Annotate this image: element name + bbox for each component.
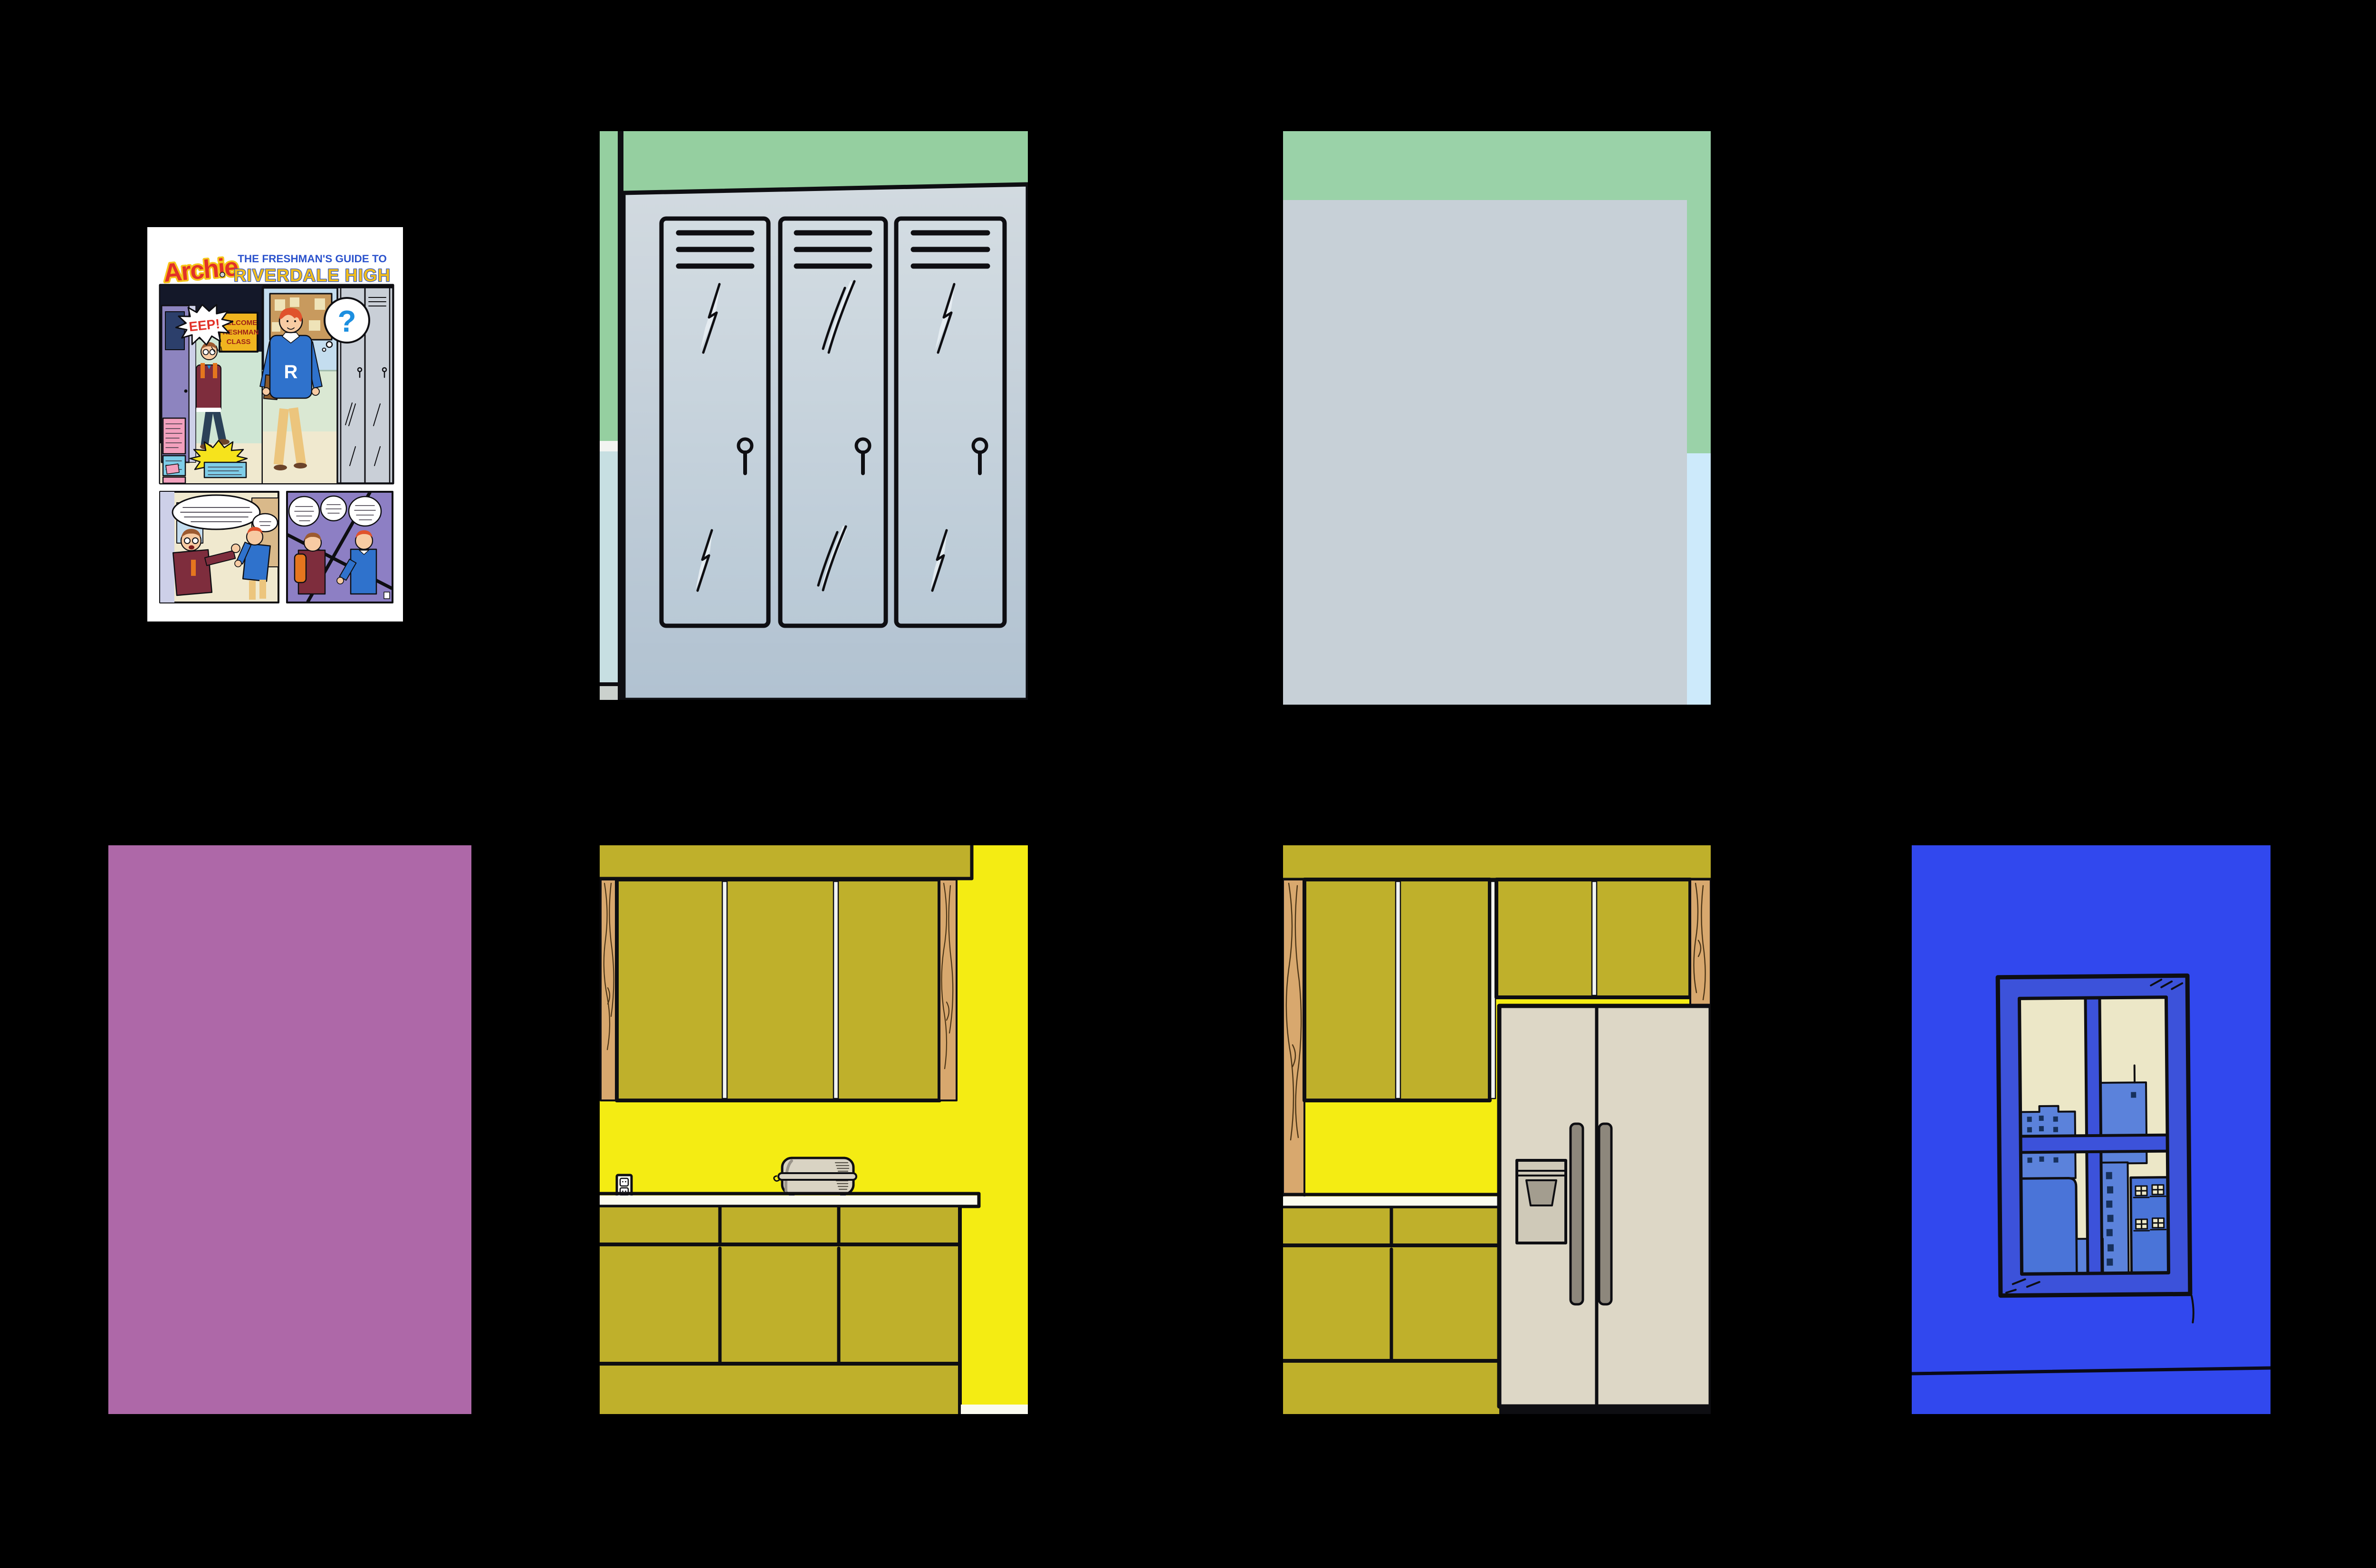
caption-boxes xyxy=(163,418,185,483)
refrigerator xyxy=(1499,1006,1711,1414)
window-mullion xyxy=(2021,1135,2167,1153)
locker-door xyxy=(661,219,768,626)
comic-inset-scene: R ? xyxy=(260,287,393,483)
soffit xyxy=(1283,845,1711,880)
logo-star-icon xyxy=(220,272,225,277)
locker-door xyxy=(896,219,1005,626)
fridge-handle xyxy=(1599,1124,1611,1304)
kitchen-fridge-panel[interactable] xyxy=(1283,845,1711,1414)
city-window-panel[interactable] xyxy=(1912,845,2271,1414)
locker-illustration-panel[interactable] xyxy=(600,131,1028,700)
window xyxy=(1998,975,2194,1324)
locker-door xyxy=(780,219,886,626)
upper-cabinets xyxy=(1496,880,1690,997)
wood-trim xyxy=(1283,880,1304,1206)
lower-cabinets xyxy=(600,1207,960,1414)
comic-bottom-left-panel xyxy=(160,492,278,602)
wood-trim xyxy=(1690,880,1711,1006)
fridge-dispenser xyxy=(1517,1160,1566,1243)
comic-bottom-right-panel xyxy=(287,492,393,602)
upper-cabinets xyxy=(1304,880,1490,1100)
soffit xyxy=(600,845,972,879)
baseboard xyxy=(961,1405,1028,1414)
svg-text:CLASS: CLASS xyxy=(227,338,251,346)
comic-title-top: THE FRESHMAN'S GUIDE TO xyxy=(238,253,387,265)
dropped-paper xyxy=(166,464,179,474)
bread-box xyxy=(774,1158,856,1195)
purple-blank-panel[interactable] xyxy=(108,845,471,1414)
sweater-letter: R xyxy=(284,362,298,382)
city-building xyxy=(2131,1177,2169,1273)
caption-box xyxy=(204,462,246,478)
comic-main-art: WELCOME FRESHMAN CLASS EEP! xyxy=(160,285,393,483)
countertop xyxy=(600,1194,979,1206)
countertop xyxy=(1283,1195,1499,1207)
svg-text:?: ? xyxy=(337,304,356,338)
blockout-lockers xyxy=(1283,200,1687,705)
city-building xyxy=(2021,1178,2077,1274)
wood-trim xyxy=(601,880,617,1100)
upper-cabinets xyxy=(601,880,957,1100)
comic-title-main: RIVERDALE HIGH xyxy=(234,266,391,285)
comic-cover-panel[interactable]: Archie THE FRESHMAN'S GUIDE TO RIVERDALE… xyxy=(147,227,403,621)
page-number-box xyxy=(384,592,390,599)
kitchen-counter-panel[interactable] xyxy=(600,845,1028,1414)
lower-cabinets xyxy=(1283,1208,1504,1414)
wood-trim xyxy=(939,880,957,1100)
blockout-strip xyxy=(1687,453,1711,705)
fridge-handle xyxy=(1571,1124,1583,1304)
locker-blockout-panel[interactable] xyxy=(1283,131,1711,705)
